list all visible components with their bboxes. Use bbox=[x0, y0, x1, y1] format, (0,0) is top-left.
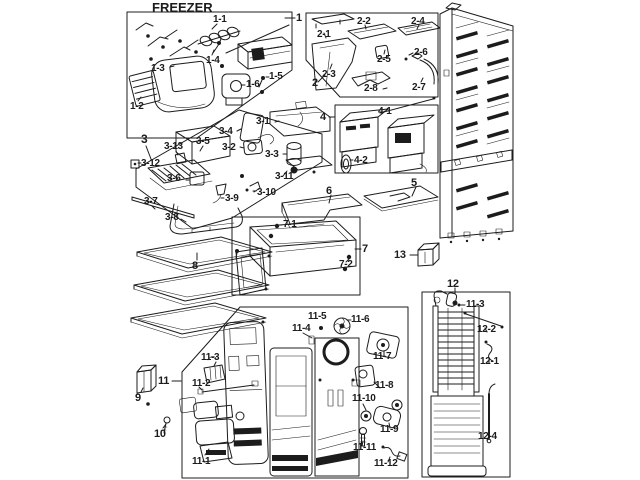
callout-6: 6 bbox=[326, 186, 332, 197]
callout-7-2: 7-2 bbox=[339, 260, 353, 270]
callout-11-9: 11-9 bbox=[380, 425, 398, 435]
callout-2-6: 2-6 bbox=[414, 48, 428, 58]
callout-1-5: 1-5 bbox=[269, 72, 283, 82]
callout-12-1: 12-1 bbox=[480, 357, 499, 367]
callout-3-1: 3-1 bbox=[256, 117, 270, 127]
cabinet-liner-drawing bbox=[440, 3, 513, 243]
callout-box3-num: 3 bbox=[141, 133, 147, 145]
callout-box1-num: 1 bbox=[296, 13, 302, 24]
callout-1-3: 1-3 bbox=[151, 64, 165, 74]
callout-2-1: 2-1 bbox=[317, 30, 331, 40]
callout-2-3: 2-3 bbox=[322, 70, 336, 80]
callout-box12-num: 12 bbox=[447, 279, 459, 290]
callout-3-8: 3-8 bbox=[165, 213, 179, 223]
callout-12-2: 12-2 bbox=[477, 325, 496, 335]
freezer-parts-diagram: FREEZER 1 1-1 1-3 1-4 1-2 1-6 1-5 2 2-1 … bbox=[0, 0, 640, 480]
diagram-title: FREEZER bbox=[152, 1, 213, 14]
callout-11-2: 11-2 bbox=[192, 379, 210, 389]
callout-11-3: 11-3 bbox=[201, 353, 219, 363]
callout-3-12: 3-12 bbox=[141, 159, 160, 169]
ice-room-parts-drawing bbox=[131, 101, 332, 234]
callout-3-5: 3-5 bbox=[196, 137, 210, 147]
callout-5: 5 bbox=[411, 178, 417, 189]
callout-3-4: 3-4 bbox=[219, 127, 233, 137]
callout-2-8: 2-8 bbox=[364, 84, 378, 94]
callout-3-10: 3-10 bbox=[257, 188, 276, 198]
callout-1-2: 1-2 bbox=[130, 102, 144, 112]
callout-3-6: 3-6 bbox=[167, 174, 181, 184]
callout-1-4: 1-4 bbox=[206, 56, 220, 66]
callout-3-2: 3-2 bbox=[222, 143, 236, 153]
drawer-drawing bbox=[236, 221, 356, 295]
evaporator-drawing bbox=[428, 291, 504, 476]
callout-11-4: 11-4 bbox=[292, 324, 310, 334]
callout-3-11: 3-11 bbox=[275, 172, 293, 182]
callout-11-12: 11-12 bbox=[374, 459, 398, 469]
callout-11-5: 11-5 bbox=[308, 312, 326, 322]
callout-8: 8 bbox=[192, 261, 198, 272]
callout-4-2: 4-2 bbox=[354, 156, 368, 166]
callout-3-13: 3-13 bbox=[164, 142, 183, 152]
callout-10: 10 bbox=[154, 429, 166, 440]
callout-3-7: 3-7 bbox=[144, 197, 158, 207]
callout-2-7: 2-7 bbox=[412, 83, 426, 93]
callout-12-11-3: 11-3 bbox=[466, 300, 484, 310]
callout-7-1: 7-1 bbox=[283, 220, 297, 230]
callout-11-10: 11-10 bbox=[352, 394, 376, 404]
diagram-line-art bbox=[0, 0, 640, 480]
callout-9: 9 bbox=[135, 393, 141, 404]
callout-12-4: 12-4 bbox=[478, 432, 497, 442]
callout-3-3: 3-3 bbox=[265, 150, 279, 160]
callout-1-1: 1-1 bbox=[213, 15, 227, 25]
callout-11-8: 11-8 bbox=[375, 381, 393, 391]
callout-11-6: 11-6 bbox=[351, 315, 369, 325]
callout-box11-num: 11 bbox=[158, 376, 169, 387]
callout-2-5: 2-5 bbox=[377, 55, 391, 65]
shelves-drawing bbox=[131, 237, 272, 338]
callout-11-11: 11-11 bbox=[353, 443, 376, 453]
callout-11-1: 11-1 bbox=[192, 457, 210, 467]
callout-box2-num: 2 bbox=[312, 78, 318, 89]
callout-box7-num: 7 bbox=[362, 244, 368, 255]
callout-11-7: 11-7 bbox=[373, 352, 391, 362]
callout-13: 13 bbox=[394, 250, 406, 261]
callout-2-4: 2-4 bbox=[411, 17, 425, 27]
callout-2-2: 2-2 bbox=[357, 17, 371, 27]
callout-1-6: 1-6 bbox=[246, 80, 260, 90]
callout-3-9: 3-9 bbox=[225, 194, 239, 204]
callout-4-1: 4-1 bbox=[378, 107, 392, 117]
callout-box4-num: 4 bbox=[320, 112, 326, 123]
